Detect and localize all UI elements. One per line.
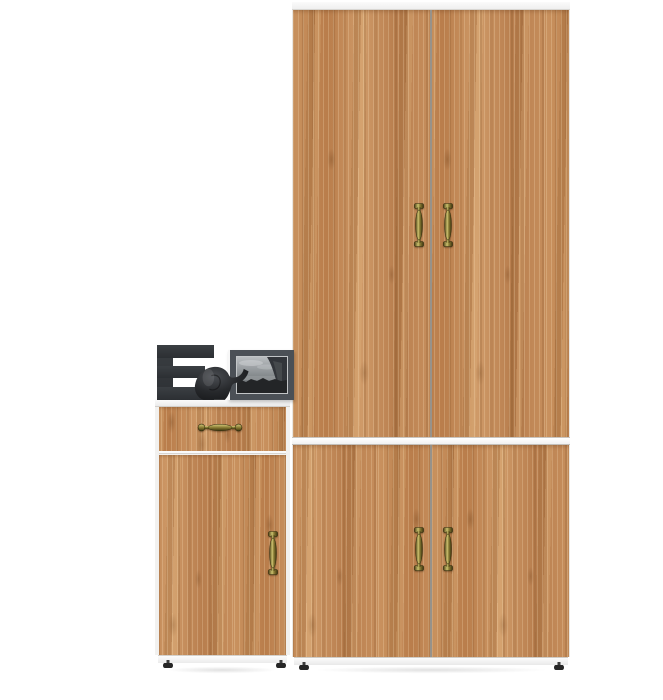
cabinet-plinth [158,655,287,663]
cabinet-carcass [155,407,290,655]
wardrobe-lower-section [292,445,570,657]
wardrobe [292,2,570,670]
wardrobe-lower-left-door [293,445,430,657]
elephant-figurine [192,361,250,400]
wardrobe-upper-left-door [293,10,430,437]
product-photo-scene [0,0,663,700]
wardrobe-plinth [294,657,568,665]
cabinet-drawer-gap [159,451,286,454]
cabinet-door-handle [268,531,278,575]
cabinet-drawer-handle [197,422,243,434]
cabinet-door [159,455,286,655]
wardrobe-upper-left-handle [414,203,424,247]
wardrobe-upper-right-handle [443,203,453,247]
wardrobe-lower-left-handle [414,527,424,571]
wardrobe-lower-right-handle [443,527,453,571]
cabinet-right-foot [276,663,286,668]
wardrobe-top-panel [292,2,570,10]
wardrobe-right-foot [554,665,564,670]
wardrobe-middle-band [292,437,570,445]
wardrobe-upper-section [292,10,570,437]
drawer-cabinet [155,398,290,670]
cabinet-left-foot [163,663,173,668]
wardrobe-left-foot [299,665,309,670]
